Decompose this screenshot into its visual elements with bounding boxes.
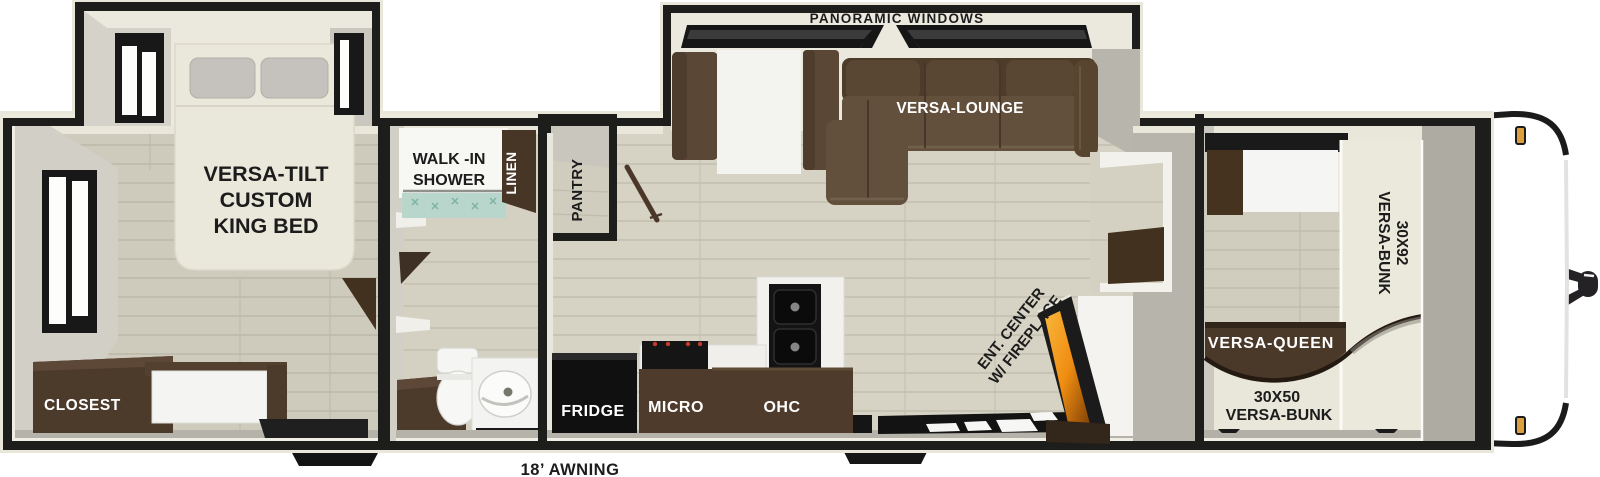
svg-text:MICRO: MICRO [648, 399, 704, 416]
svg-text:30X50: 30X50 [1254, 389, 1300, 406]
svg-text:FRIDGE: FRIDGE [561, 403, 624, 420]
svg-text:30X92: 30X92 [1393, 221, 1410, 266]
svg-text:PANTRY: PANTRY [569, 159, 586, 222]
svg-text:SHOWER: SHOWER [413, 172, 485, 189]
svg-text:LINEN: LINEN [504, 152, 519, 195]
svg-text:VERSA-BUNK: VERSA-BUNK [1226, 407, 1333, 424]
svg-text:VERSA-BUNK: VERSA-BUNK [1375, 191, 1392, 295]
svg-text:WALK -IN: WALK -IN [413, 151, 486, 168]
svg-text:18’ AWNING: 18’ AWNING [521, 461, 620, 477]
svg-text:CLOSEST: CLOSEST [44, 397, 121, 414]
svg-text:PANORAMIC WINDOWS: PANORAMIC WINDOWS [810, 11, 985, 26]
svg-text:OHC: OHC [763, 399, 800, 416]
svg-text:CUSTOM: CUSTOM [220, 188, 313, 212]
svg-text:VERSA-QUEEN: VERSA-QUEEN [1208, 335, 1334, 352]
svg-text:KING BED: KING BED [213, 214, 318, 238]
svg-text:VERSA-TILT: VERSA-TILT [203, 162, 328, 186]
svg-text:VERSA-LOUNGE: VERSA-LOUNGE [896, 100, 1023, 117]
